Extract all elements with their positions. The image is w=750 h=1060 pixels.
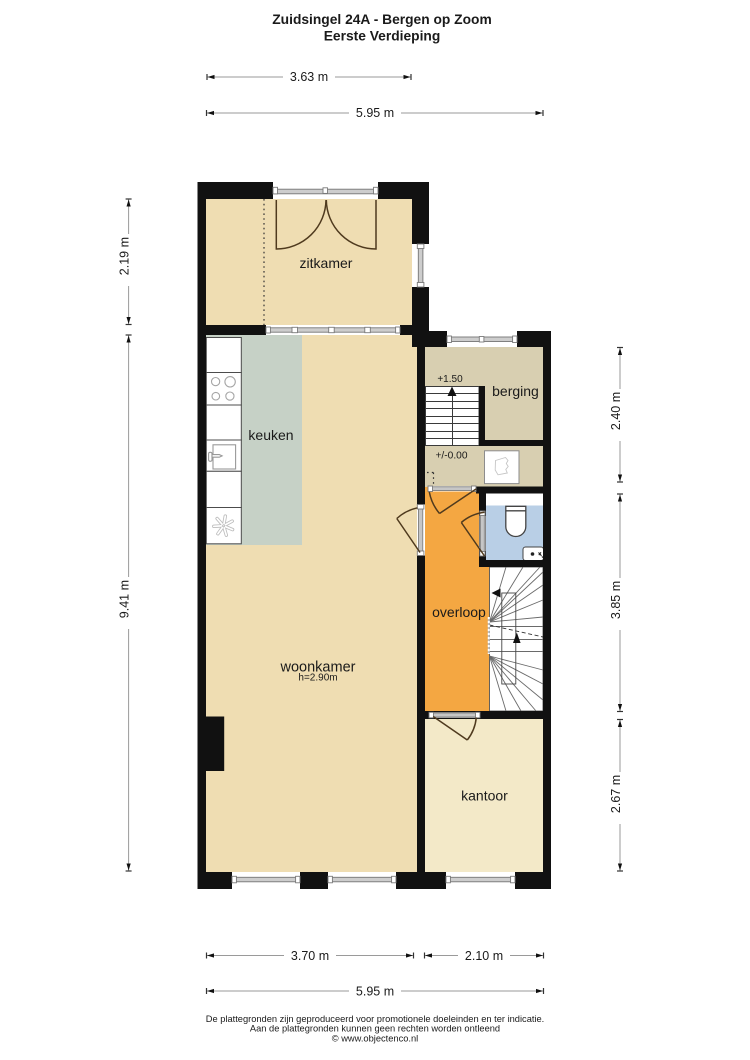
svg-text:De plattegronden zijn geproduc: De plattegronden zijn geproduceerd voor … bbox=[206, 1014, 545, 1024]
svg-text:kantoor: kantoor bbox=[461, 788, 508, 804]
svg-text:9.41 m: 9.41 m bbox=[118, 580, 132, 618]
svg-text:overloop: overloop bbox=[432, 604, 486, 620]
svg-text:5.95 m: 5.95 m bbox=[356, 985, 394, 999]
svg-text:h=2.90m: h=2.90m bbox=[298, 673, 337, 684]
svg-text:+/-0.00: +/-0.00 bbox=[435, 451, 467, 462]
svg-text:3.70 m: 3.70 m bbox=[291, 949, 329, 963]
svg-text:© www.objectenco.nl: © www.objectenco.nl bbox=[332, 1034, 418, 1044]
svg-text:+1.50: +1.50 bbox=[437, 374, 463, 385]
svg-text:2.19 m: 2.19 m bbox=[118, 237, 132, 275]
svg-text:2.40 m: 2.40 m bbox=[609, 392, 623, 430]
svg-text:berging: berging bbox=[492, 383, 539, 399]
svg-text:2.10 m: 2.10 m bbox=[465, 949, 503, 963]
svg-text:zitkamer: zitkamer bbox=[300, 255, 353, 271]
svg-text:Eerste Verdieping: Eerste Verdieping bbox=[324, 28, 441, 43]
svg-text:5.95 m: 5.95 m bbox=[356, 106, 394, 120]
svg-text:keuken: keuken bbox=[248, 427, 293, 443]
svg-text:Aan de plattegronden kunnen ge: Aan de plattegronden kunnen geen rechten… bbox=[250, 1024, 500, 1034]
svg-text:3.63 m: 3.63 m bbox=[290, 70, 328, 84]
svg-text:2.67 m: 2.67 m bbox=[609, 775, 623, 813]
svg-text:3.85 m: 3.85 m bbox=[609, 581, 623, 619]
svg-text:Zuidsingel 24A - Bergen op Zoo: Zuidsingel 24A - Bergen op Zoom bbox=[272, 12, 491, 27]
